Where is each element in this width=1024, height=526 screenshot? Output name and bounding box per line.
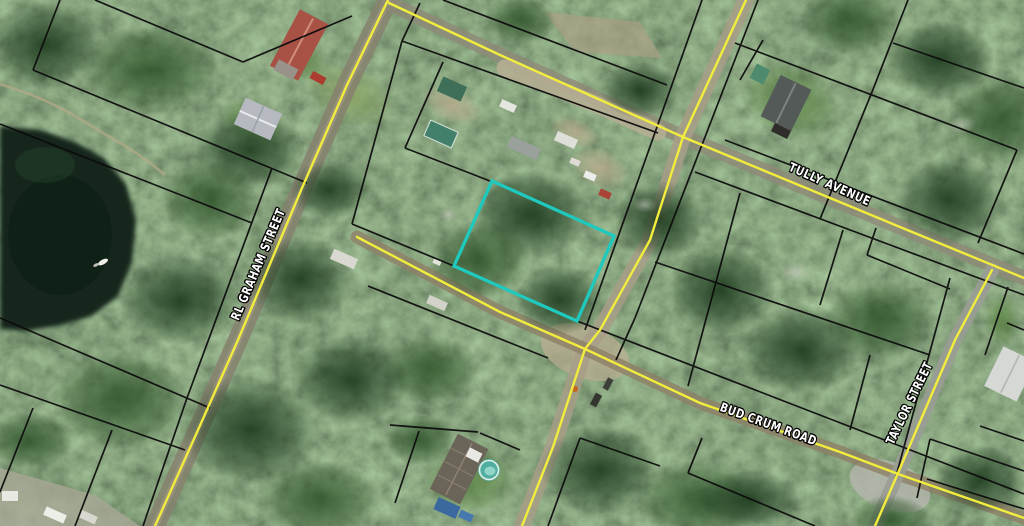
aerial-parcel-map[interactable]: RL GRAHAM STREET TULLY AVENUE BUD CRUM R…	[0, 0, 1024, 526]
vehicle-trailer-sw-1	[2, 491, 18, 501]
swimming-pool	[478, 459, 500, 481]
map-canvas[interactable]: RL GRAHAM STREET TULLY AVENUE BUD CRUM R…	[0, 0, 1024, 526]
